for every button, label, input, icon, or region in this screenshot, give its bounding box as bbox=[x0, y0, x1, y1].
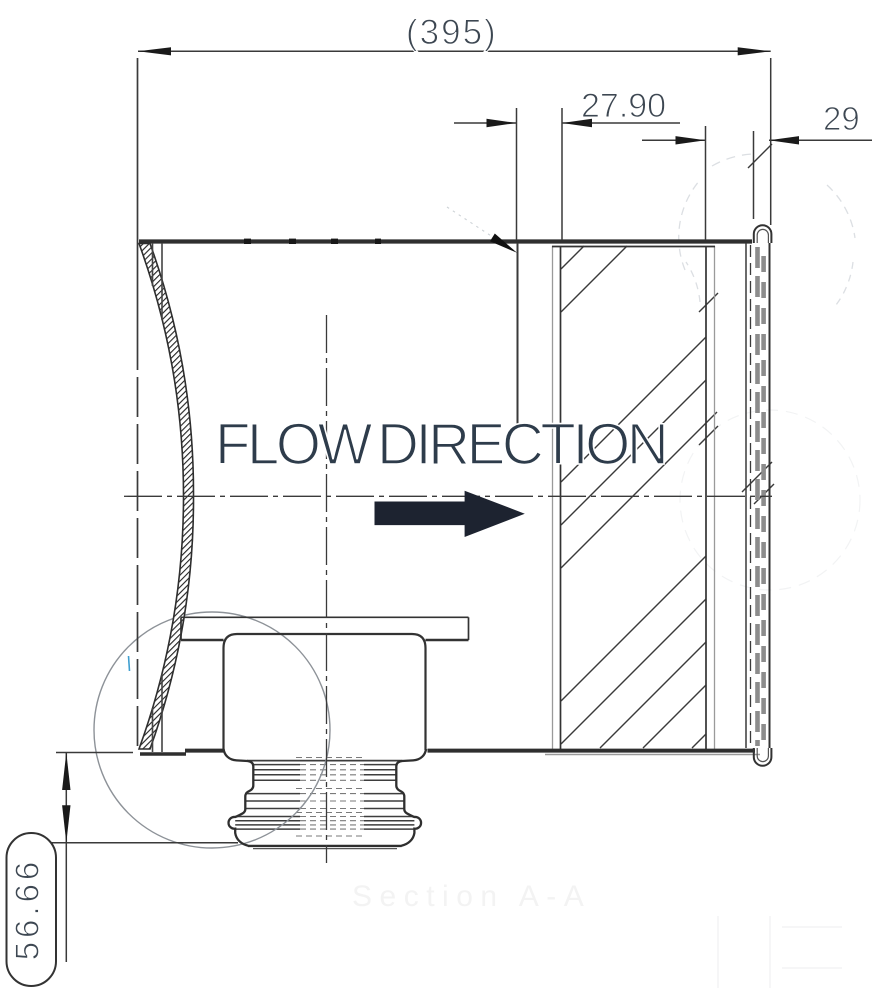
svg-text:FLOWDIRECTION: FLOWDIRECTION bbox=[215, 412, 665, 477]
svg-text:(395): (395) bbox=[406, 13, 498, 52]
svg-text:29: 29 bbox=[823, 100, 860, 137]
svg-text:27.90: 27.90 bbox=[581, 87, 666, 125]
svg-text:Section A-A: Section A-A bbox=[352, 880, 591, 913]
svg-text:56.66: 56.66 bbox=[9, 858, 46, 961]
